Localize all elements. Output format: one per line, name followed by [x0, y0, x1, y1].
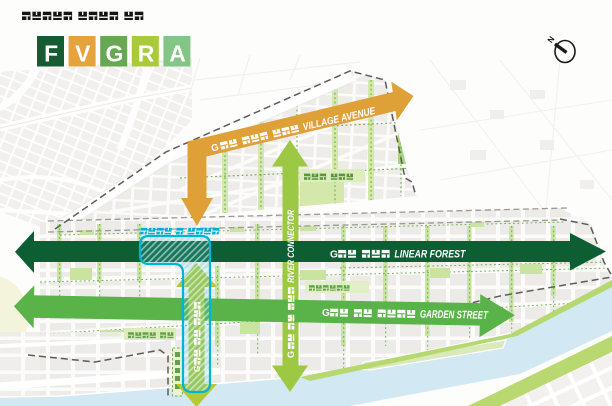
svg-text:G: G [105, 41, 123, 67]
svg-text:G: G [322, 308, 330, 319]
svg-text:RIVER CONNECTOR: RIVER CONNECTOR [286, 210, 297, 283]
svg-text:LINEAR FOREST: LINEAR FOREST [394, 248, 466, 260]
svg-text:GARDEN STREET: GARDEN STREET [420, 309, 489, 322]
svg-text:R: R [138, 41, 155, 67]
svg-text:F: F [44, 41, 58, 67]
svg-text:A: A [169, 41, 186, 67]
svg-text:G: G [193, 366, 202, 372]
svg-text:G: G [330, 249, 338, 260]
svg-text:V: V [75, 41, 91, 67]
svg-text:G: G [286, 351, 296, 358]
